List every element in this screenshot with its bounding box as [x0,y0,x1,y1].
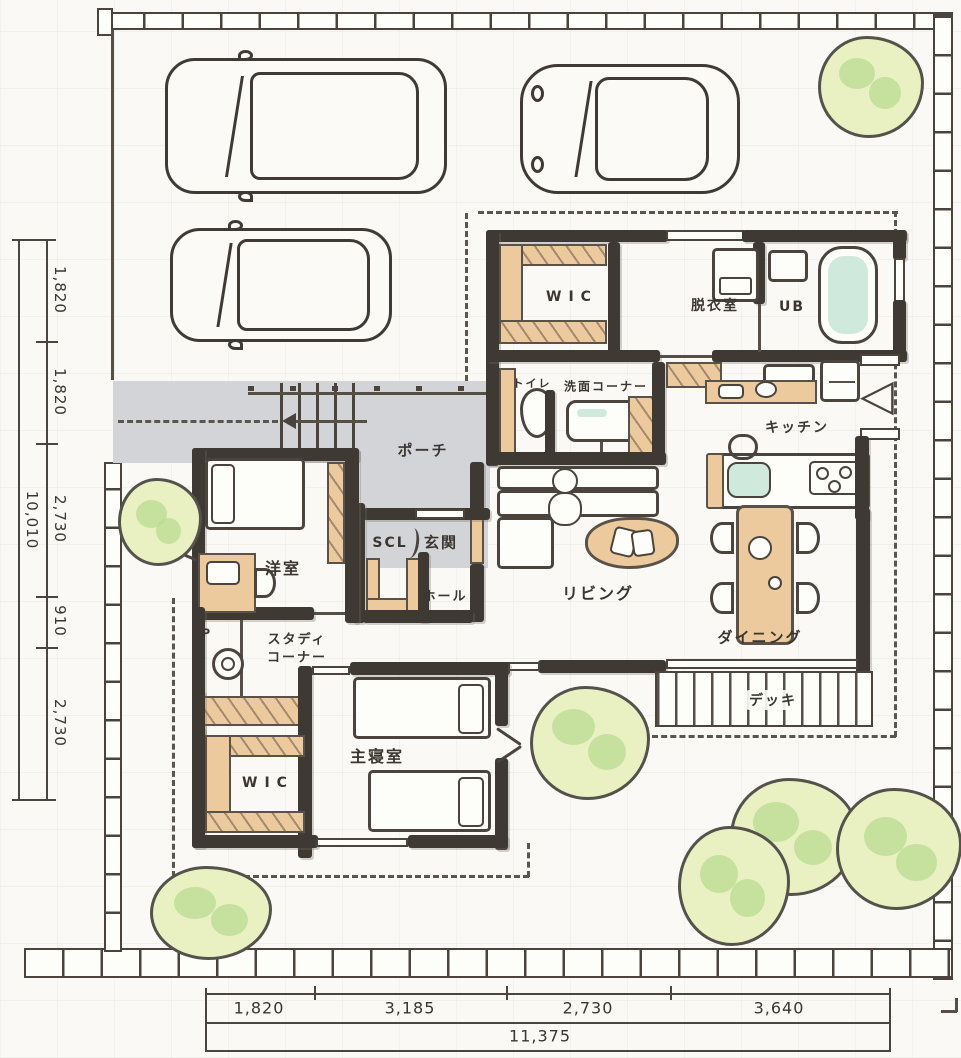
fence-north [105,12,953,30]
dimension-tick [36,596,58,598]
refrigerator [820,360,860,402]
study-chair [212,648,244,680]
dimension-tick [670,986,672,1000]
dim-bottom-1: 1,820 [234,999,285,1018]
wall [192,835,318,848]
dim-left-total: 10,010 [23,491,41,550]
approach-arrow-shaft [295,420,367,423]
room-label-dressing: 脱衣室 [691,295,739,315]
bed-master [368,770,491,832]
wall [470,462,484,514]
dimension-bracket [889,988,891,1052]
study-cabinet [198,696,300,726]
tableware [748,536,772,560]
stove [809,461,861,495]
step-rail-dots [248,386,488,391]
tree [818,36,924,138]
washbasin-water [577,409,607,417]
entrance-door [415,509,465,519]
entrance-jamb-cabinet [470,514,484,564]
room-label-study-1: スタディ [267,629,326,648]
room-label-porch: ポーチ [397,440,448,461]
wall [538,660,666,673]
dimension-bracket [12,799,56,801]
wall [486,230,668,242]
room-label-entrance: 玄関 [424,532,458,553]
dimension-tick [36,341,58,343]
washer-drawer [719,277,752,295]
washing-machine [712,248,759,302]
counter-item [718,384,744,399]
wall [408,835,508,848]
tree [530,686,650,800]
dim-left-2: 1,820 [51,368,69,416]
dimension-bracket [12,239,56,241]
island-side-panel [706,453,724,509]
desk-monitor [206,561,240,585]
sofa-back [497,466,659,490]
window-north [666,230,744,241]
room-label-study-2: コーナー [267,647,327,666]
tree [678,826,790,946]
desk-western-room [198,553,256,613]
partition-line [758,304,761,352]
sofa-chaise [497,517,554,569]
kitchen-island [706,453,870,509]
dimension-line-left-segments [46,240,48,800]
study-chair-inner [221,657,235,671]
window-living-south [506,662,540,671]
dim-left-5: 2,730 [51,699,69,747]
dim-bottom-3: 2,730 [563,999,614,1018]
dim-left-1: 1,820 [51,266,69,314]
dashed-line-north [478,211,898,214]
dimension-tick [36,443,58,445]
bed-master [353,677,491,739]
car-sedan [520,64,740,194]
tree [150,866,272,960]
back-door-jamb [860,354,900,366]
wall [893,230,906,260]
dashed-line-deck-south [652,735,896,738]
back-door-swing-icon: ◁ [860,374,894,418]
dimension-line-bottom [205,1050,891,1052]
approach-arrow-head [282,413,296,429]
burner [839,466,852,479]
room-label-dining: ダイニング [717,627,802,648]
dining-chair [710,582,734,614]
wall [486,452,666,465]
closet-wic-north [499,320,607,344]
faucet [728,434,758,460]
wall [486,350,660,362]
counter-bowl [755,381,777,398]
tree [118,478,202,566]
burner [816,467,829,480]
bathtub-water [828,256,868,334]
dim-bottom-2: 3,185 [385,999,436,1018]
dashed-line-bedroom-east [527,843,530,877]
bath-counter [768,250,808,282]
magazine [630,529,655,558]
pillow [458,777,484,827]
western-room-closet [327,462,345,564]
door-swing-line [496,727,521,745]
wall [495,662,508,726]
floor-plan-canvas: ◁ [0,0,961,1058]
room-label-shoe-closet: SCL [372,535,407,551]
room-label-toilet: トイレ [513,375,552,391]
room-label-western-room: 洋室 [265,555,301,579]
room-label-bath: UB [779,299,805,315]
corner-mark [955,998,958,1012]
desk-mark: P [202,627,212,640]
wall [345,448,359,623]
door-opening [660,355,714,358]
kitchen-sink [727,462,771,498]
tableware [768,576,782,590]
wall [742,230,907,242]
dimension-tick [314,986,316,1000]
dimension-line-bottom [205,993,891,995]
door-swing-line [496,745,521,763]
car-van-2 [170,228,392,342]
dimension-line-left-total [18,240,20,800]
fridge-line [829,381,855,383]
tree [836,788,961,910]
wall [192,727,205,848]
dimension-tick [506,986,508,1000]
bathtub [818,246,878,344]
room-label-kitchen: キッチン [765,417,829,437]
property-line-west [111,30,114,380]
dining-chair [710,522,734,554]
wall [608,242,620,354]
window-bedroom-south [316,838,408,847]
pillow [458,684,484,734]
coffee-table [585,517,679,569]
wall [486,230,499,466]
door-opening [314,612,345,615]
dim-bottom-4: 3,640 [754,999,805,1018]
dim-bottom-total: 11,375 [509,1027,571,1046]
dashed-line-west [172,598,175,877]
dashed-line-approach [118,420,278,423]
deck-sliding-window [666,659,858,669]
wall [350,662,510,675]
dim-left-3: 2,730 [51,495,69,543]
dimension-bracket [205,988,207,1052]
room-label-wic-north: WIC [546,289,598,305]
dining-chair [796,522,820,554]
room-label-living: リビング [562,580,634,604]
pillow [211,464,235,524]
wall [856,508,870,674]
person-on-sofa [548,492,582,526]
dining-table [736,505,794,645]
closet-wic-south [205,811,305,833]
room-label-hall: ホール [422,586,467,605]
dimension-line-bottom [205,1022,891,1024]
room-label-wic-south: WIC [242,775,294,791]
window-bath [894,258,905,302]
wall [652,362,665,462]
room-label-deck: デッキ [746,690,800,710]
burner [828,480,841,493]
room-label-master-bedroom: 主寝室 [350,743,404,767]
bed-western-room [205,458,305,530]
car-van [165,58,447,194]
wall [363,610,473,623]
step-rail-line [248,392,488,395]
dashed-line-wing-west [465,213,468,381]
room-label-washroom: 洗面コーナー [564,378,648,395]
dimension-tick [36,647,58,649]
dim-left-4: 910 [51,605,69,637]
dining-chair [796,582,820,614]
person-on-sofa [552,468,578,494]
window-bedroom [312,666,350,675]
